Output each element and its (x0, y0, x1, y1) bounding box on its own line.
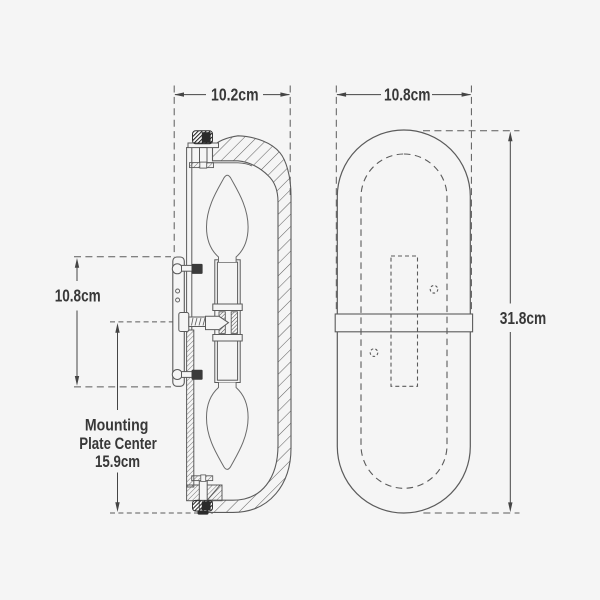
svg-text:10.2cm: 10.2cm (211, 85, 259, 105)
svg-text:Mounting: Mounting (85, 417, 149, 435)
svg-text:15.9cm: 15.9cm (95, 453, 140, 471)
svg-text:31.8cm: 31.8cm (500, 308, 547, 328)
svg-text:Plate Center: Plate Center (79, 435, 157, 453)
svg-text:10.8cm: 10.8cm (55, 285, 101, 305)
svg-text:10.8cm: 10.8cm (384, 85, 431, 105)
